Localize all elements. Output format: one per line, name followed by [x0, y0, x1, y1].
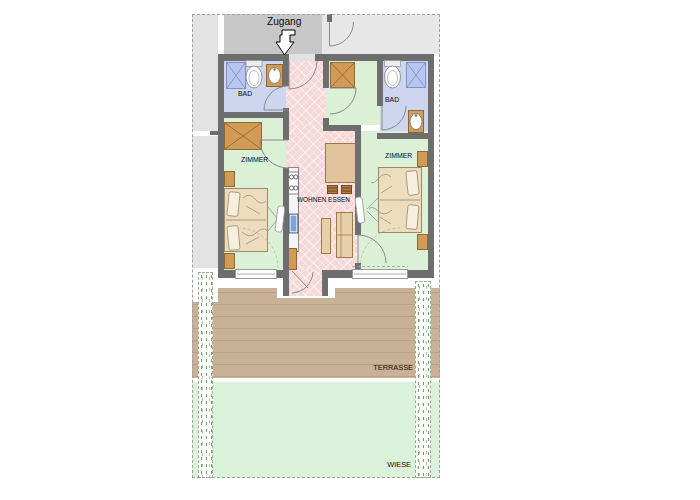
nightstand-right-top [417, 151, 428, 167]
wall-living-bedroomL-a [283, 118, 289, 140]
double-bed-left [224, 188, 268, 252]
wall-bath-left-a [283, 61, 289, 86]
wall-bath-right-bottom [377, 133, 434, 139]
sofa-bench-right [336, 212, 353, 258]
hedge-right [415, 281, 431, 478]
wall-right [428, 54, 434, 278]
terrace-vestibule-floor [289, 270, 322, 296]
wall-hall-a [323, 61, 329, 88]
hedge-left [198, 272, 213, 478]
double-bed-right [378, 167, 422, 233]
wall-living-bedroomL-b [283, 168, 289, 270]
dining-chair-2 [341, 185, 352, 194]
lawn-label: WIESE [349, 461, 411, 469]
living-dining-label: WOHNEN ESSEN [297, 196, 350, 203]
bedroom-right-label: ZIMMER [385, 152, 412, 160]
landing-area-right [322, 14, 440, 54]
dining-table [325, 143, 357, 183]
wall-left [218, 54, 224, 278]
wall-bath-right-left [377, 61, 383, 106]
corridor-door-stub [327, 14, 332, 22]
terrace-label: TERRASSE [350, 364, 413, 372]
left-strip-tick [210, 131, 218, 135]
hallway-floor [286, 60, 326, 125]
wall-vestibule-side-a [283, 270, 289, 296]
shower-left [226, 62, 246, 89]
floorplan-canvas: Zugang BAD BAD ZIMMER ZIMMER WOHNEN ESSE… [0, 0, 700, 500]
bedroom-left-label: ZIMMER [241, 156, 268, 164]
nightstand-left-bottom [224, 253, 235, 269]
wall-living-bedroomR-a [355, 131, 361, 235]
wardrobe-left [224, 122, 262, 150]
neighbor-area-left [192, 14, 218, 268]
kitchenette-counter [288, 167, 299, 252]
window-bedroom-right [352, 269, 408, 279]
bath-left-label: BAD [238, 90, 252, 98]
wall-vestibule-side-b [322, 270, 328, 296]
washbasin-cabinet-left [266, 64, 283, 87]
entrance-threshold [289, 54, 315, 61]
wardrobe-vestibule [330, 62, 355, 88]
washbasin-cabinet-right [408, 110, 424, 133]
dining-chair-1 [327, 185, 338, 194]
sofa-bench-left [321, 218, 331, 254]
nightstand-left-top [224, 171, 235, 187]
entrance-label: Zugang [267, 16, 301, 27]
nightstand-right-bottom [417, 234, 428, 250]
wall-top [218, 54, 434, 61]
bath-right-label: BAD [385, 96, 399, 104]
wall-bath-left-bottom [218, 112, 289, 118]
shower-right [406, 62, 426, 88]
window-bedroom-left [235, 269, 277, 279]
